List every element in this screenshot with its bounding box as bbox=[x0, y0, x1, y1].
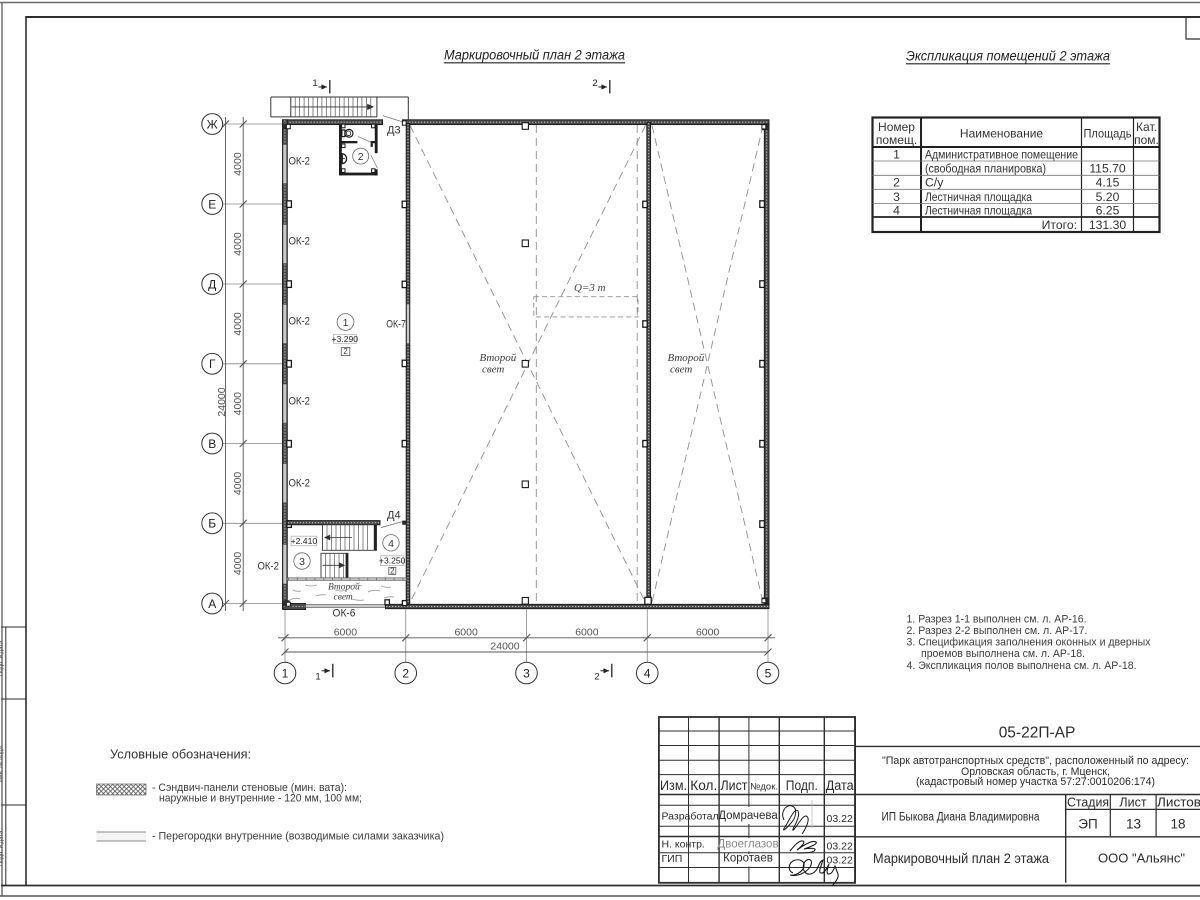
svg-text:05-22П-АР: 05-22П-АР bbox=[999, 725, 1076, 742]
svg-text:проемов выполнена см. л. АР-18: проемов выполнена см. л. АР-18. bbox=[921, 648, 1085, 660]
svg-text:Б: Б bbox=[208, 517, 216, 531]
svg-text:№док.: №док. bbox=[750, 782, 778, 793]
svg-text:Дата: Дата bbox=[826, 778, 854, 793]
svg-text:Условные обозначения:: Условные обозначения: bbox=[110, 747, 251, 762]
svg-text:2: 2 bbox=[592, 78, 597, 89]
svg-text:4000: 4000 bbox=[232, 232, 244, 256]
svg-text:4000: 4000 bbox=[232, 152, 244, 176]
svg-text:Е: Е bbox=[208, 197, 216, 211]
svg-text:Итого:: Итого: bbox=[1042, 218, 1077, 232]
svg-text:4. Экспликация полов выполнена: 4. Экспликация полов выполнена см. л. АР… bbox=[907, 660, 1137, 672]
svg-text:Д3: Д3 bbox=[387, 125, 401, 137]
svg-text:1: 1 bbox=[282, 666, 289, 680]
svg-text:+3.290: +3.290 bbox=[332, 334, 359, 344]
svg-text:Административное помещение: Административное помещение bbox=[925, 148, 1078, 162]
svg-text:А: А bbox=[208, 597, 216, 611]
svg-text:пом.: пом. bbox=[1134, 133, 1159, 147]
svg-text:свет: свет bbox=[334, 593, 353, 603]
svg-text:6000: 6000 bbox=[696, 626, 720, 638]
svg-text:ОК-6: ОК-6 bbox=[333, 608, 356, 620]
svg-text:13: 13 bbox=[1126, 817, 1141, 832]
svg-text:1: 1 bbox=[893, 148, 900, 162]
svg-text:ЭП: ЭП bbox=[1078, 817, 1097, 832]
svg-text:Наименование: Наименование bbox=[960, 127, 1044, 141]
svg-text:2: 2 bbox=[358, 151, 364, 163]
svg-text:4000: 4000 bbox=[232, 552, 244, 576]
svg-text:2: 2 bbox=[343, 347, 347, 356]
svg-text:Домрачева: Домрачева bbox=[718, 810, 778, 822]
svg-text:6000: 6000 bbox=[454, 626, 478, 638]
svg-text:Подп.: Подп. bbox=[786, 778, 818, 793]
svg-text:Д: Д bbox=[208, 277, 216, 291]
svg-text:2: 2 bbox=[893, 176, 900, 190]
svg-text:4: 4 bbox=[893, 203, 900, 217]
svg-text:Кат.: Кат. bbox=[1136, 120, 1157, 134]
svg-text:6000: 6000 bbox=[575, 626, 599, 638]
svg-text:Ж: Ж bbox=[207, 117, 218, 131]
svg-text:115.70: 115.70 bbox=[1089, 162, 1126, 176]
svg-text:ООО "Альянс": ООО "Альянс" bbox=[1098, 851, 1185, 866]
svg-text:ИП Быкова Диана Владимировна: ИП Быкова Диана Владимировна bbox=[882, 812, 1041, 824]
svg-text:03.22: 03.22 bbox=[827, 855, 853, 867]
svg-text:2: 2 bbox=[402, 666, 409, 680]
svg-text:(свободная планировка): (свободная планировка) bbox=[925, 162, 1046, 176]
svg-text:ОК-2: ОК-2 bbox=[289, 395, 311, 407]
svg-text:2: 2 bbox=[594, 672, 599, 683]
svg-text:В: В bbox=[208, 437, 216, 451]
svg-text:3. Спецификация заполнения око: 3. Спецификация заполнения оконных и две… bbox=[907, 637, 1151, 649]
svg-text:18: 18 bbox=[1170, 817, 1185, 832]
svg-text:- Перегородки внутренние (возв: - Перегородки внутренние (возводимые сил… bbox=[152, 830, 444, 842]
svg-text:свет: свет bbox=[482, 364, 504, 376]
svg-text:Н. контр.: Н. контр. bbox=[662, 839, 705, 851]
svg-text:Изм.: Изм. bbox=[660, 778, 687, 793]
svg-text:4: 4 bbox=[388, 538, 394, 550]
svg-text:Маркировочный план 2 этажа: Маркировочный план 2 этажа bbox=[444, 48, 625, 63]
svg-text:свет: свет bbox=[670, 364, 692, 376]
svg-text:Д4: Д4 bbox=[387, 510, 401, 522]
svg-text:4: 4 bbox=[644, 666, 651, 680]
svg-text:Лестничная площадка: Лестничная площадка bbox=[925, 203, 1032, 217]
svg-text:ОК-7: ОК-7 bbox=[386, 318, 406, 330]
svg-text:4.15: 4.15 bbox=[1096, 176, 1120, 190]
svg-text:Второй: Второй bbox=[668, 352, 705, 364]
svg-text:03.22: 03.22 bbox=[827, 841, 853, 853]
svg-text:24000: 24000 bbox=[490, 641, 519, 653]
svg-text:Коротаев: Коротаев bbox=[723, 853, 773, 865]
svg-text:Двоеглазов: Двоеглазов bbox=[717, 839, 778, 851]
svg-text:"Парк автотранспортных средств: "Парк автотранспортных средств", располо… bbox=[882, 755, 1189, 767]
svg-text:Лист: Лист bbox=[721, 778, 748, 793]
svg-text:2: 2 bbox=[390, 566, 394, 575]
svg-text:Лист: Лист bbox=[1119, 796, 1146, 810]
svg-text:1: 1 bbox=[315, 672, 320, 683]
svg-text:Подп. и дата: Подп. и дата bbox=[0, 640, 5, 676]
svg-text:4000: 4000 bbox=[232, 472, 244, 496]
svg-text:03.22: 03.22 bbox=[827, 813, 853, 825]
svg-text:3: 3 bbox=[299, 556, 305, 568]
svg-text:Второй: Второй bbox=[480, 352, 517, 364]
svg-text:Площадь: Площадь bbox=[1084, 127, 1132, 141]
svg-text:5: 5 bbox=[765, 666, 772, 680]
svg-text:Кол.: Кол. bbox=[690, 778, 717, 793]
svg-text:6000: 6000 bbox=[334, 626, 358, 638]
svg-text:С/у: С/у bbox=[925, 176, 944, 190]
svg-text:4000: 4000 bbox=[232, 392, 244, 416]
svg-text:2. Разрез 2-2 выполнен см. л.: 2. Разрез 2-2 выполнен см. л. АР-17. bbox=[907, 625, 1088, 637]
svg-text:Стадия: Стадия bbox=[1067, 796, 1109, 810]
svg-text:3: 3 bbox=[523, 666, 530, 680]
svg-text:ОК-2: ОК-2 bbox=[289, 316, 311, 328]
svg-text:ОК-2: ОК-2 bbox=[289, 236, 311, 248]
svg-text:Листов: Листов bbox=[1157, 796, 1200, 810]
svg-text:+3.250: +3.250 bbox=[379, 555, 406, 565]
svg-text:+2.410: +2.410 bbox=[291, 536, 318, 546]
svg-text:1. Разрез 1-1 выполнен см. л.: 1. Разрез 1-1 выполнен см. л. АР-16. bbox=[907, 614, 1087, 626]
svg-text:ГИП: ГИП bbox=[662, 853, 683, 865]
svg-text:ОК-2: ОК-2 bbox=[289, 478, 311, 490]
svg-text:3: 3 bbox=[893, 190, 900, 204]
svg-text:помещ.: помещ. bbox=[876, 133, 917, 147]
svg-text:1: 1 bbox=[312, 78, 317, 89]
svg-text:Г: Г bbox=[209, 357, 216, 371]
svg-text:6.25: 6.25 bbox=[1096, 203, 1120, 217]
svg-text:Номер: Номер bbox=[878, 120, 915, 134]
svg-text:1: 1 bbox=[343, 317, 349, 329]
svg-text:Экспликация помещений 2 этажа: Экспликация помещений 2 этажа bbox=[906, 49, 1110, 64]
svg-text:наружные и внутренние - 120 мм: наружные и внутренние - 120 мм, 100 мм; bbox=[159, 792, 362, 804]
svg-text:Инв. № подл.: Инв. № подл. bbox=[0, 744, 5, 782]
svg-text:Маркировочный план 2 этажа: Маркировочный план 2 этажа bbox=[873, 851, 1049, 866]
svg-text:4000: 4000 bbox=[232, 312, 244, 336]
svg-text:24000: 24000 bbox=[216, 387, 228, 416]
svg-text:ОК-2: ОК-2 bbox=[258, 561, 280, 573]
svg-text:131.30: 131.30 bbox=[1089, 218, 1126, 232]
svg-text:Разработал: Разработал bbox=[662, 811, 719, 823]
svg-text:5.20: 5.20 bbox=[1096, 190, 1120, 204]
svg-text:Подп. и дата: Подп. и дата bbox=[0, 830, 5, 866]
svg-text:Q=3 т: Q=3 т bbox=[574, 282, 606, 294]
svg-text:(кадастровый номер участка 57:: (кадастровый номер участка 57:27:0010206… bbox=[916, 776, 1155, 788]
svg-text:ОК-2: ОК-2 bbox=[289, 155, 311, 167]
svg-text:Лестничная площадка: Лестничная площадка bbox=[925, 190, 1032, 204]
